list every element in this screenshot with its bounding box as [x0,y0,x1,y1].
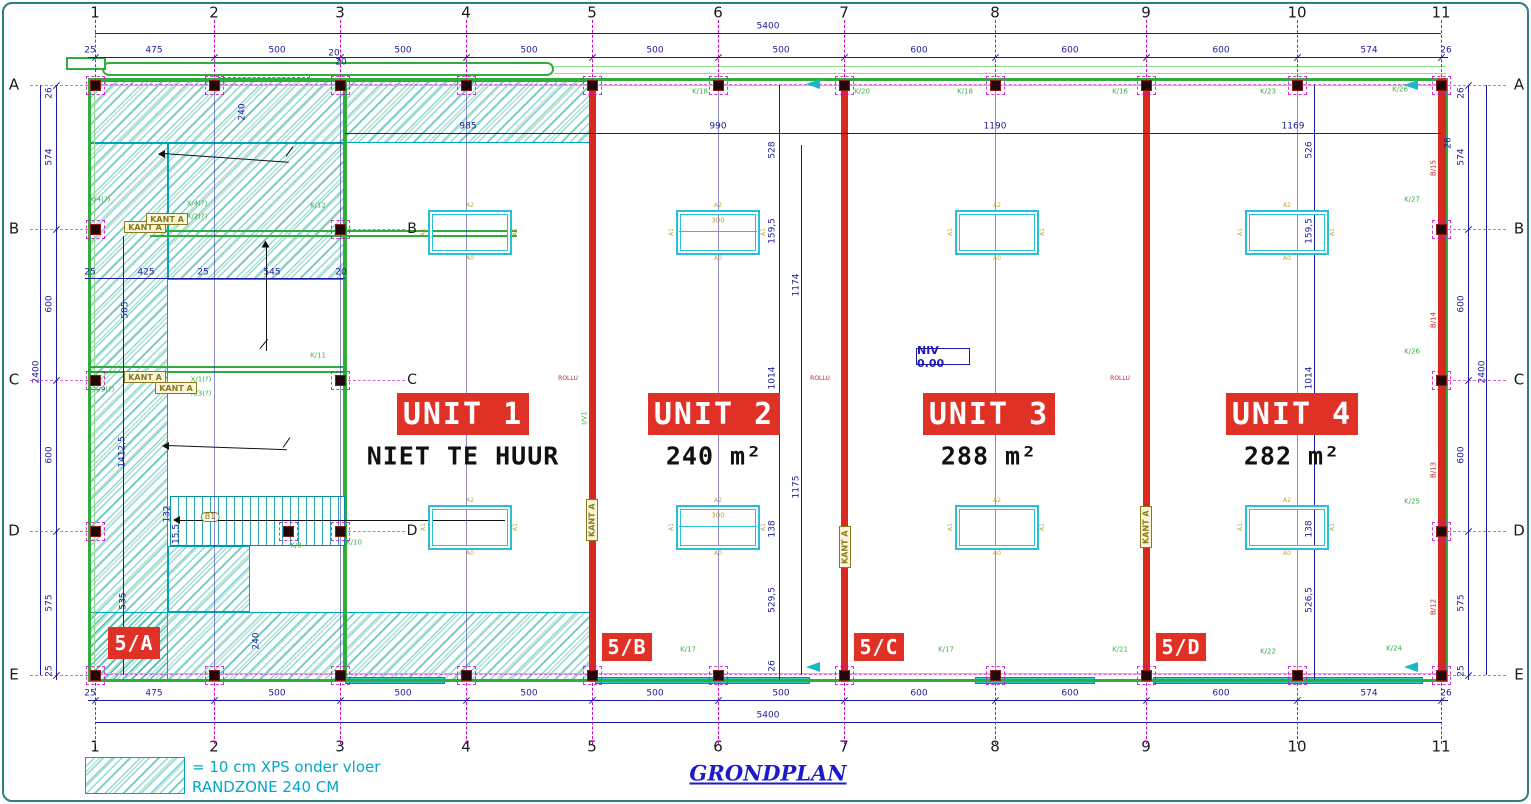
k-label: K/17 [938,647,954,654]
grid-number: 3 [335,6,345,21]
skylight-dim-label: 300 [711,218,724,225]
grid-letter-inner: B [407,222,417,236]
grid-letter-inner: C [407,373,417,387]
column-marker [335,224,346,235]
dim-label: 600 [1212,47,1229,56]
dim-line [95,722,1441,723]
dim-label: 25 [84,269,95,278]
column-marker [1436,80,1447,91]
niv-label: NIV 0.00 [916,348,970,365]
grid-line [844,20,845,82]
slope-arrow [167,445,287,450]
dim-line [88,700,1448,701]
column-marker [1292,80,1303,91]
k-label: K/4(?) [90,197,111,204]
column-marker [713,80,724,91]
zone-label: 5/C [854,633,904,661]
skylight-label: A1 [761,228,767,236]
grid-letter: E [9,668,18,683]
grid-letter: E [1514,668,1523,683]
unit-banner: UNIT 3 [923,393,1055,435]
dim-label: 500 [646,47,663,56]
column-marker [335,670,346,681]
dim-label: 475 [145,47,162,56]
dim-label: 1175 [793,476,802,499]
column-marker [335,375,346,386]
row-line [348,531,405,532]
legend-swatch [85,757,185,794]
dim-label: 5400 [757,712,780,721]
legend-text-line2: RANDZONE 240 CM [192,778,339,796]
column-marker [335,80,346,91]
grid-line [592,20,593,82]
grid-line [592,678,593,744]
rollu-label: ROLLU [810,376,830,382]
zone-label: 5/B [602,633,652,661]
skylight [955,505,1039,550]
k-label: K/16 [1112,89,1128,96]
dim-label: 528 [769,141,778,158]
b-label: B/12 [1431,599,1438,615]
stairs [170,496,345,546]
dim-label: 500 [268,690,285,699]
dim-label: 475 [145,690,162,699]
skylight-label: A1 [1330,228,1336,236]
dim-label: 500 [772,47,789,56]
column-marker [1292,670,1303,681]
dim-label: 240 [239,103,248,120]
grid-letter: B [1514,222,1524,237]
b-label: B/14 [1431,312,1438,328]
wall-green-light [94,85,1442,86]
grid-letter-inner: D [407,524,418,538]
column-marker [283,526,294,537]
row-line [30,380,88,381]
skylight-label: A0 [993,551,1001,557]
skylight-dim-label: 300 [711,513,724,520]
grid-line-inner [718,85,719,675]
k-label: K/22 [1260,649,1276,656]
column-marker [335,526,346,537]
flow-arrow-icon [806,79,820,89]
column-marker [587,670,598,681]
unit-area-label: 288 m² [941,442,1037,471]
grid-letter: A [9,78,19,93]
skylight [428,505,512,550]
zone-label: 5/D [1156,633,1206,661]
grid-line [995,678,996,744]
skylight-label: A1 [513,228,519,236]
dim-line [85,278,345,279]
skylight-label: A2 [466,203,474,209]
k-label: K/25 [1404,499,1420,506]
grid-line-inner [466,85,467,675]
skylight-label: A2 [714,498,722,504]
dim-label: 138 [769,520,778,537]
dim-label: 25 [84,47,95,56]
arrowhead-icon [162,442,169,450]
arrowhead-icon [158,150,165,158]
wall-red [841,82,848,682]
skylight-label: A1 [421,523,427,531]
column-marker [1436,526,1447,537]
wall-green-light [554,66,1446,67]
dim-label: 574 [1360,47,1377,56]
dim-line [95,33,1441,34]
unit-banner: UNIT 2 [648,393,780,435]
row-line [1448,675,1506,676]
kant-label: KANT A [146,213,188,225]
grid-letter: C [1514,373,1524,388]
k-label: K/12 [310,203,326,210]
k-label: K/11 [310,353,326,360]
dim-label: 25 [197,269,208,278]
grid-line [1441,20,1442,82]
grid-letter: A [1514,78,1524,93]
unit-area-label: 282 m² [1244,442,1340,471]
dim-line [1468,85,1469,680]
floorplan-canvas: NIV 0.00 GRONDPLAN = 10 cm XPS onder vlo… [0,0,1531,804]
dim-label: 1014 [769,367,778,390]
dim-line [345,133,1441,134]
grid-number: 11 [1431,6,1450,21]
k-label: K/18 [957,89,973,96]
grid-line [1146,678,1147,744]
column-marker [1436,224,1447,235]
k-label: X/2(?) [187,214,208,221]
grid-number: 4 [461,6,471,21]
dim-label: 1412,5 [119,436,128,468]
hatch-area [168,546,250,612]
grid-letter: B [9,222,19,237]
unit-area-label: 240 m² [666,442,762,471]
column-marker [1141,670,1152,681]
dim-label: 1169 [1282,123,1305,132]
grid-line [95,20,96,82]
row-line [90,84,1446,85]
skylight-label: A2 [714,203,722,209]
dim-label: 574 [46,148,55,165]
dim-label: 500 [394,690,411,699]
grid-line-inner [1297,85,1298,675]
skylight-label: A1 [948,523,954,531]
column-marker [839,670,850,681]
skylight-label: A2 [993,203,1001,209]
dim-line [88,57,1448,58]
skylight-label: A1 [669,523,675,531]
dim-label: 535 [120,592,129,609]
column-marker [90,224,101,235]
grid-line [718,678,719,744]
skylight-label: A2 [1283,498,1291,504]
column-marker [990,670,1001,681]
plan-title: GRONDPLAN [689,761,846,786]
column-marker [1141,80,1152,91]
wall-red [589,82,596,682]
skylight-label: A2 [1283,203,1291,209]
k-label: I/V1 [582,411,589,425]
column-marker [1436,375,1447,386]
row-line [348,229,405,230]
grid-line [340,20,341,82]
dim-label: 526 [1306,141,1315,158]
k-label: K/24 [1386,646,1402,653]
grid-line-inner [995,85,996,675]
skylight [1245,505,1329,550]
column-marker [90,375,101,386]
flow-arrow-icon [806,662,820,672]
dim-label: 575 [46,594,55,611]
canopy-outline [102,62,554,76]
slope-arrow [283,437,291,447]
grid-line-inner [214,85,215,675]
dim-label: 20 [335,269,346,278]
k-label: K/18 [692,89,708,96]
skylight-label: A0 [466,256,474,262]
dim-label: 500 [520,690,537,699]
skylight-label: A1 [1040,523,1046,531]
wall-green-inner [88,366,345,368]
stair-name-label: B1 [201,512,220,522]
row-line [30,531,88,532]
wall-green [88,78,1448,81]
wall-red [1143,82,1150,682]
unit-area-label: NIET TE HUUR [367,442,560,471]
column-marker [990,80,1001,91]
grid-line [1146,20,1147,82]
dim-line [779,85,780,680]
dim-label: 600 [1061,690,1078,699]
skylight-label: A1 [421,228,427,236]
dim-label: 1014 [1306,367,1315,390]
skylight-label: A1 [1040,228,1046,236]
skylight-label: A0 [1283,256,1291,262]
dim-label: 15,5 [173,524,182,544]
k-label: K/17 [680,647,696,654]
row-line [90,674,1446,675]
unit-banner: UNIT 1 [397,393,529,435]
skylight-label: A2 [466,498,474,504]
zone-label: 5/A [108,627,160,659]
grid-letter: D [1513,524,1525,539]
row-line [30,675,88,676]
wall-green-light [554,73,1446,74]
row-line [1448,380,1506,381]
k-label: K/8 [290,543,301,550]
kant-label: KANT A [839,526,851,568]
skylight-mid-line [679,231,757,232]
dim-label: 545 [263,269,280,278]
grid-number: 2 [209,6,219,21]
skylight-label: A1 [1238,523,1244,531]
skylight-label: A1 [948,228,954,236]
dim-label: 505 [122,301,131,318]
skylight-mid-line [679,526,757,527]
skylight [428,210,512,255]
rollu-label: ROLLU [558,376,578,382]
b-label: B/15 [1431,160,1438,176]
skylight-label: A0 [993,256,1001,262]
dim-label: 500 [394,47,411,56]
grid-letter: D [8,524,20,539]
grid-line [1297,678,1298,744]
dim-label: 159,5 [769,218,778,244]
skylight-label: A2 [993,498,1001,504]
column-marker [839,80,850,91]
dim-label: 600 [1458,295,1467,312]
kant-label: KANT A [586,499,598,541]
dim-label: 240 [253,632,262,649]
grid-number: 10 [1287,6,1306,21]
skylight-label: A1 [1330,523,1336,531]
column-marker [90,526,101,537]
row-line [30,229,88,230]
dim-label: 600 [46,446,55,463]
grid-line [214,20,215,82]
k-label: K/26 [1404,349,1420,356]
column-marker [209,670,220,681]
grid-number: 6 [713,6,723,21]
dim-label: 575 [1458,594,1467,611]
arrowhead-icon [173,516,180,524]
dim-label: 574 [1458,148,1467,165]
grid-line [844,678,845,744]
grid-line [718,20,719,82]
skylight-label: A0 [466,551,474,557]
grid-line [1441,678,1442,744]
column-marker [90,80,101,91]
column-marker [461,80,472,91]
column-marker [713,670,724,681]
k-label: K/23 [1260,89,1276,96]
dim-label: 600 [1458,446,1467,463]
k-label: K/20 [854,89,870,96]
skylight-label: A1 [669,228,675,236]
row-line [30,85,88,86]
dim-label: 500 [520,47,537,56]
grid-line [466,678,467,744]
grid-line [995,20,996,82]
kant-label: KANT A [155,382,197,394]
dim-label: 600 [910,690,927,699]
skylight-label: A0 [714,256,722,262]
dim-label: 132 [164,505,173,522]
dim-label: 26 [769,660,778,671]
grid-number: 5 [587,6,597,21]
rollu-label: ROLLU [1110,376,1130,382]
row-line [1448,229,1506,230]
dim-label: 529,5 [769,587,778,613]
skylight [1245,210,1329,255]
grid-number: 1 [90,6,100,21]
arrowhead-icon [262,241,270,248]
row-line [348,380,405,381]
column-marker [209,80,220,91]
dim-label: 500 [646,690,663,699]
unit-banner: UNIT 4 [1226,393,1358,435]
skylight-label: A1 [513,523,519,531]
k-label: K/21 [1112,647,1128,654]
b-label: B/13 [1431,462,1438,478]
dim-label: 425 [137,269,154,278]
wall-green [88,679,1448,682]
dim-label: 574 [1360,690,1377,699]
grid-letter: C [9,373,19,388]
dim-label: 526,5 [1306,587,1315,613]
slope-arrow [266,243,267,351]
dim-label: 600 [910,47,927,56]
dim-label: 5400 [757,23,780,32]
skylight-label: A1 [761,523,767,531]
k-label: X/4(?) [187,201,208,208]
skylight [955,210,1039,255]
legend-text-line1: = 10 cm XPS onder vloer [192,758,380,776]
dim-label: 500 [772,690,789,699]
canopy-step [66,57,106,70]
skylight-label: A0 [1283,551,1291,557]
dim-label: 500 [268,47,285,56]
dim-label: 25 [84,690,95,699]
grid-number: 8 [990,6,1000,21]
grid-number: 7 [839,6,849,21]
dim-label: 600 [1212,690,1229,699]
column-marker [1436,670,1447,681]
dim-label: 26 [1445,137,1454,148]
column-marker [587,80,598,91]
skylight-label: A1 [1238,228,1244,236]
dim-label: 985 [459,123,476,132]
skylight-label: A0 [714,551,722,557]
row-line [1448,531,1506,532]
grid-line [214,678,215,744]
grid-line [466,20,467,82]
column-marker [461,670,472,681]
grid-line [95,678,96,744]
grid-number: 9 [1141,6,1151,21]
dim-label: 600 [46,295,55,312]
k-label: K/26 [1392,87,1408,94]
dim-label: 600 [1061,47,1078,56]
flow-arrow-icon [1404,662,1418,672]
dim-line [56,85,57,680]
kant-label: KANT A [1140,506,1152,548]
row-line [1448,85,1506,86]
hatch-area [168,143,345,280]
grid-line [1297,20,1298,82]
grid-line [340,678,341,744]
dim-label: 1174 [793,274,802,297]
column-marker [90,670,101,681]
dim-line [801,145,802,675]
k-label: K/27 [1404,197,1420,204]
